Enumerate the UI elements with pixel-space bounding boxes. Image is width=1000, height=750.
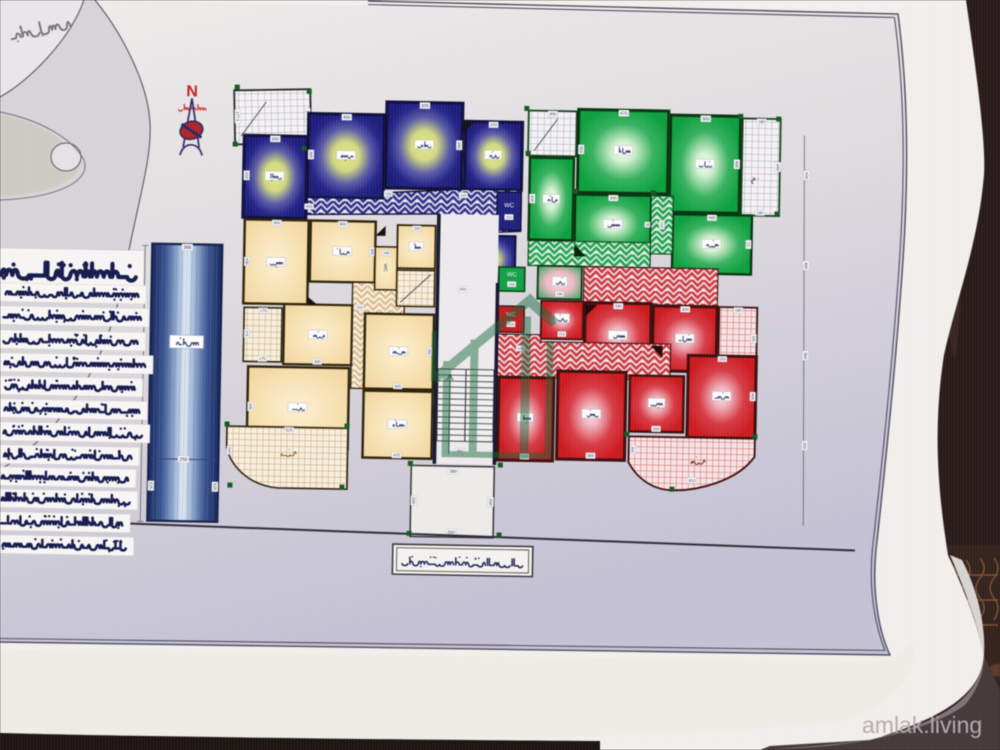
svg-text:amlak.living: amlak.living bbox=[862, 712, 982, 738]
